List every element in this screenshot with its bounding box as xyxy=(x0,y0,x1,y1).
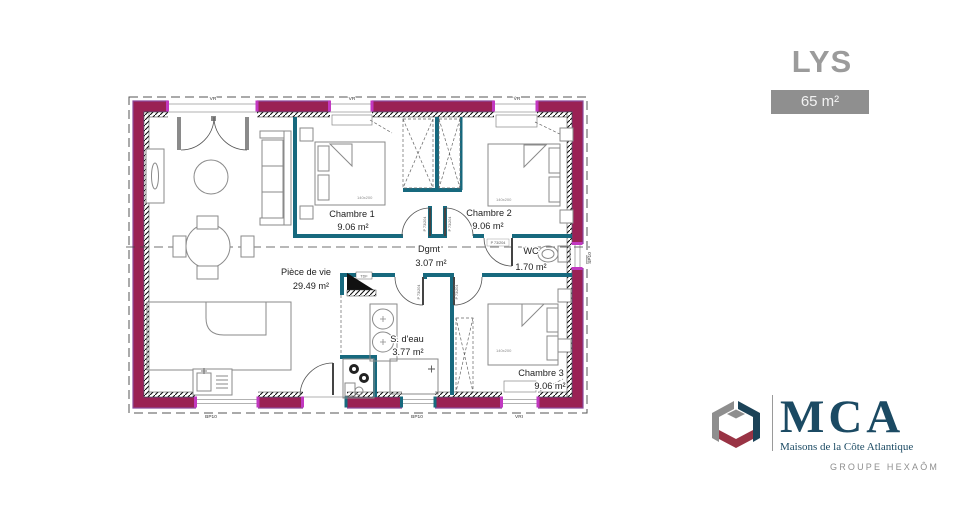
room-name: WC xyxy=(523,246,539,256)
room-name: Chambre 2 xyxy=(466,208,511,218)
door-label: P 73/204 xyxy=(417,285,421,300)
room-area: 29.49 m² xyxy=(293,281,329,291)
living-furniture xyxy=(146,131,291,279)
mca-cube-icon xyxy=(705,398,765,454)
window-label: BP10 xyxy=(411,414,423,420)
room-name: S. d'eau xyxy=(390,334,423,344)
wc-fixtures xyxy=(538,246,570,262)
window-label: VRI xyxy=(515,414,523,420)
window-label: BP10 xyxy=(205,414,217,420)
room-name: Chambre 1 xyxy=(329,209,374,219)
window-label: VR xyxy=(514,96,521,102)
model-title: LYS xyxy=(772,44,872,80)
room-area: 9.06 m² xyxy=(472,221,503,231)
room-name: Dgmt xyxy=(418,244,440,254)
page: 140x200 140x200 140x200 xyxy=(0,0,960,532)
window-label: SP10 xyxy=(587,252,593,264)
window-label: VR xyxy=(210,96,217,102)
tdf-label: TDF xyxy=(360,275,368,279)
area-badge: 65 m² xyxy=(771,90,869,114)
kitchen xyxy=(147,302,291,395)
room-area: 9.06 m² xyxy=(337,222,368,232)
brand-divider xyxy=(772,395,773,451)
bed-size-label: 140x200 xyxy=(496,197,512,202)
room-area: 3.07 m² xyxy=(415,258,446,268)
door-label: P 73/204 xyxy=(423,217,427,232)
brand-initials: MCA xyxy=(780,390,904,444)
door-label: P 73/204 xyxy=(491,241,506,245)
bed-size-label: 140x200 xyxy=(496,348,512,353)
window-label: VR xyxy=(349,96,356,102)
floor-plan: 140x200 140x200 140x200 xyxy=(124,88,594,420)
brand-group: GROUPE HEXAÔM xyxy=(830,462,939,472)
room-name: Chambre 3 xyxy=(518,368,563,378)
bedroom1-furniture: 140x200 xyxy=(300,128,385,219)
brand-name: Maisons de la Côte Atlantique xyxy=(780,441,913,453)
room-area: 9.06 m² xyxy=(534,381,565,391)
door-label: P 73/204 xyxy=(455,285,459,300)
bed-size-label: 140x200 xyxy=(357,195,373,200)
room-area: 3.77 m² xyxy=(392,347,423,357)
room-area: 1.70 m² xyxy=(515,262,546,272)
bathroom-fixtures xyxy=(343,304,438,398)
door-label: P 73/204 xyxy=(448,217,452,232)
room-name: Pièce de vie xyxy=(281,267,331,277)
bedroom3-furniture: 140x200 xyxy=(488,289,571,365)
